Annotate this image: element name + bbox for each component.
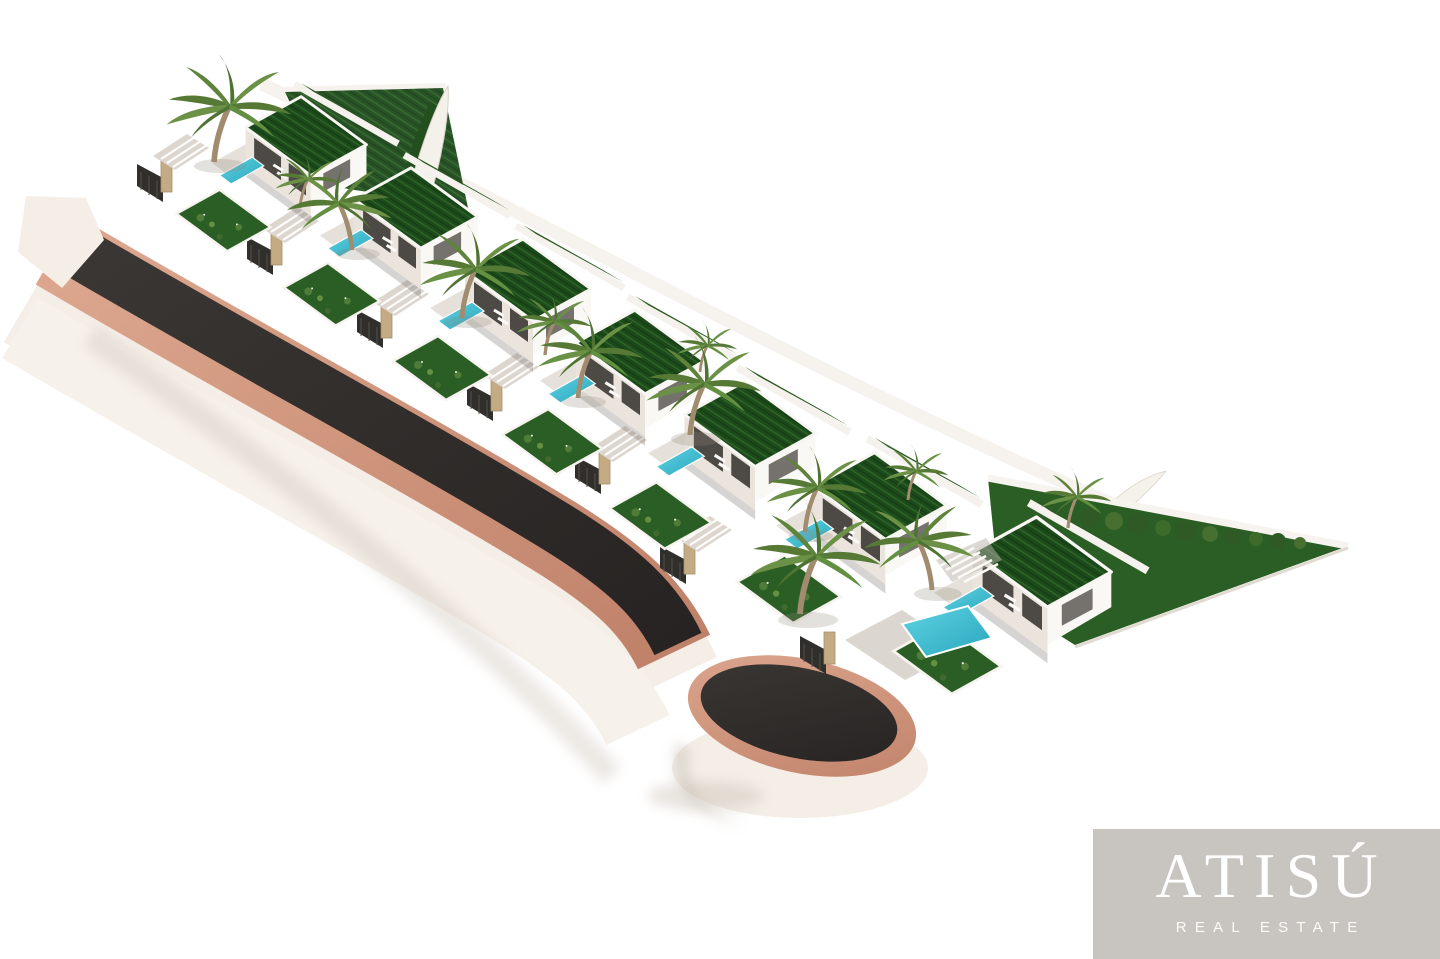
logo-badge: ATISÚ REAL ESTATE [1093, 829, 1440, 959]
gate-villa-2 [247, 233, 282, 275]
brand-name: ATISÚ [1145, 837, 1388, 915]
villa-development-render [0, 0, 1440, 959]
gate-villa-3 [357, 306, 392, 348]
gate-villa-1 [137, 160, 172, 202]
render-canvas: ATISÚ REAL ESTATE [0, 0, 1440, 959]
brand-tagline: REAL ESTATE [1168, 919, 1366, 936]
